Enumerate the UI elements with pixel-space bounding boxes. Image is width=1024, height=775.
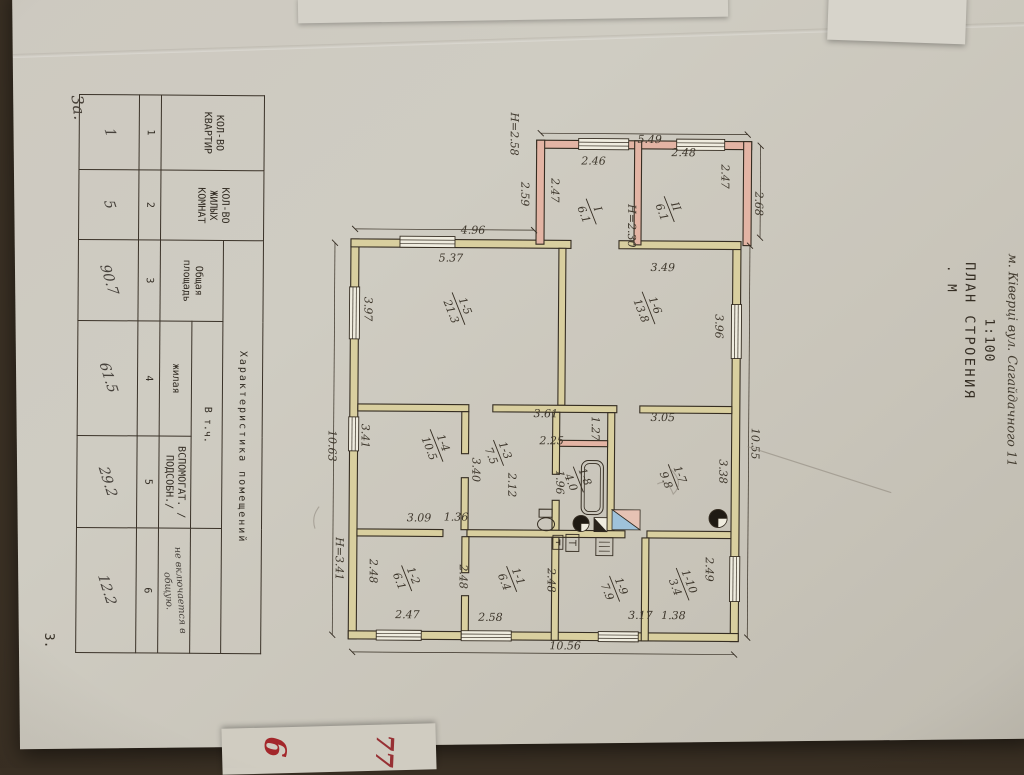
pencil-scribble	[747, 446, 891, 492]
room-area: 7.9	[597, 581, 616, 602]
dimension-label: 3.09	[406, 511, 431, 524]
room-number: I	[590, 203, 604, 213]
dimension-label: 2.59	[518, 180, 531, 206]
room-area: 6.1	[652, 201, 671, 222]
dimension-label: 3.49	[650, 260, 675, 273]
dimension-label: 3.61	[533, 407, 558, 420]
dimension-label: 2.47	[394, 608, 420, 621]
dimension-label: 3.97	[361, 296, 374, 321]
room-area: 6.1	[574, 203, 593, 224]
dimension-label: 2.25	[538, 434, 564, 447]
room-area: 6.1	[389, 570, 408, 591]
red-handwritten-mark: 77	[370, 734, 400, 769]
room-label: 1-79.8	[654, 459, 690, 495]
dimension-label: 2.58	[477, 610, 503, 623]
dimension-tick	[331, 239, 337, 245]
window	[399, 236, 454, 247]
handwritten-value: 29.2	[93, 465, 119, 498]
dimension-tick	[352, 225, 358, 231]
page-number: 3.	[41, 632, 56, 648]
room-area: 6.4	[494, 571, 513, 592]
dimension-label: 2.49	[702, 556, 715, 582]
window	[348, 416, 358, 450]
dimension-label: 5.37	[438, 251, 463, 264]
wall	[742, 141, 751, 245]
wall	[461, 411, 468, 453]
dimension-tick	[329, 631, 335, 637]
toilet-tank	[539, 509, 552, 517]
dimension-label: 3.05	[650, 410, 675, 423]
handwritten-value: 1	[99, 126, 118, 137]
room-area: 9.8	[656, 469, 675, 490]
handwritten-value: 61.5	[94, 361, 120, 394]
dimension-label: 2.48	[456, 563, 469, 589]
document-page: м. Ківерці вул. Сагайдачного 11 1:100 ПЛ…	[2, 8, 1022, 760]
dimension-label: 1.27	[588, 416, 601, 441]
dimension-label: Н=2.58	[507, 111, 520, 155]
note-cell: не включается в общую.	[157, 528, 190, 653]
handwritten-value: 12.2	[92, 573, 118, 606]
col-header-living: жилая	[159, 321, 192, 436]
dimension-label: 4.96	[459, 223, 485, 236]
wall	[535, 140, 544, 244]
characteristics-table: КОЛ-ВО КВАРТИР КОЛ-ВО ЖИЛЫХ КОМНАТ Харак…	[75, 93, 265, 653]
dimension-tick	[731, 651, 737, 657]
room-label: 1-26.1	[388, 560, 424, 596]
stove-icon-wedge	[718, 518, 727, 527]
dimension-label: 2.47	[548, 176, 561, 202]
dimension-tick	[744, 131, 750, 137]
col-number: 1	[138, 94, 161, 169]
dimension-line	[352, 651, 734, 654]
dimension-label: 3.41	[358, 423, 371, 448]
room-label: 1-613.8	[628, 286, 667, 329]
dimension-line	[355, 228, 534, 229]
window	[461, 630, 511, 640]
dimension-label: 1.38	[661, 609, 686, 622]
dimension-tick	[744, 634, 750, 640]
wall	[356, 528, 442, 536]
dimension-label: 3.38	[716, 459, 729, 484]
empty-cell	[189, 528, 221, 653]
col-header-apartments: КОЛ-ВО КВАРТИР	[160, 95, 264, 171]
room-label: 1-410.5	[416, 424, 455, 467]
background-paper-bottom: 6 77	[221, 723, 436, 775]
room-label: 1-521.3	[438, 287, 477, 330]
value-total-area: 90.7	[77, 239, 138, 320]
dimension-label: 2.48	[366, 557, 379, 583]
value-auxiliary-area: 29.2	[76, 435, 137, 527]
dimension-label: 2.48	[670, 146, 696, 159]
room-label: 1-103.4	[662, 563, 701, 606]
dimension-label: 2.68	[752, 190, 765, 216]
handwritten-value: 5	[99, 199, 118, 210]
dimension-label: 3.40	[469, 457, 482, 482]
wall	[357, 403, 468, 411]
dimension-label: 3.96	[712, 314, 725, 339]
dimension-tick	[537, 130, 543, 136]
room-label: 1-16.4	[493, 561, 529, 597]
pencil-scribble	[313, 506, 318, 528]
dimension-label: 10.55	[748, 427, 761, 459]
window	[349, 286, 359, 338]
dimension-tick	[757, 234, 763, 240]
sink-icon	[595, 537, 612, 555]
dimension-tick	[757, 142, 763, 148]
value-rooms: 5	[78, 169, 138, 239]
room-area: 7.5	[481, 445, 500, 466]
window	[598, 631, 638, 641]
window	[578, 138, 628, 149]
col-header-auxiliary: ВСПОМОГАТ. /ПОДСОБН./	[158, 436, 191, 528]
handwritten-note: не включается в общую.	[158, 530, 189, 651]
red-handwritten-mark: 6	[256, 736, 292, 758]
dimension-tick	[349, 648, 355, 654]
room-label: 1-97.9	[596, 570, 632, 606]
col-header-rooms: КОЛ-ВО ЖИЛЫХ КОМНАТ	[160, 170, 263, 241]
stove-icon-wedge	[580, 523, 588, 531]
room-area: 3.4	[665, 576, 684, 597]
dimension-label: 2.48	[544, 566, 557, 592]
room-label: I6.1	[572, 193, 608, 229]
window	[729, 556, 739, 601]
col-number: 6	[135, 527, 158, 652]
wall	[557, 248, 565, 405]
dimension-label: 5.49	[637, 132, 662, 145]
room-label: II6.1	[650, 191, 686, 227]
value-excluded-area: 12.2	[75, 527, 136, 652]
subheader-including: В т.ч.	[190, 321, 222, 528]
col-number: 2	[138, 169, 160, 239]
dimension-label: Н=3.41	[332, 536, 345, 580]
dimension-label: 10.56	[549, 639, 581, 652]
dimension-label: 2.47	[718, 163, 731, 189]
dimension-label: Н=2.30	[624, 203, 637, 247]
dimension-label: 1.36	[443, 510, 468, 523]
col-header-total-area: Общая площадь	[159, 240, 223, 321]
window	[731, 304, 741, 358]
dimension-label: 10.63	[325, 429, 338, 461]
dimension-label: 2.12	[505, 471, 518, 497]
col-number: 5	[136, 435, 159, 527]
window	[376, 630, 421, 640]
col-number: 3	[137, 239, 160, 320]
table-title: Характеристика помещений	[220, 240, 263, 653]
wall	[641, 537, 649, 640]
dimension-label: 2.46	[580, 154, 606, 167]
col-number: 4	[137, 320, 160, 435]
value-living-area: 61.5	[77, 320, 138, 435]
dimension-label: 3.17	[628, 608, 653, 621]
room-label: 1-37.5	[479, 435, 515, 471]
sheet-annotation: 3а.	[67, 93, 89, 120]
wall	[646, 530, 730, 538]
handwritten-value: 90.7	[95, 263, 121, 296]
photo-background: м. Ківерці вул. Сагайдачного 11 1:100 ПЛ…	[0, 0, 1024, 768]
